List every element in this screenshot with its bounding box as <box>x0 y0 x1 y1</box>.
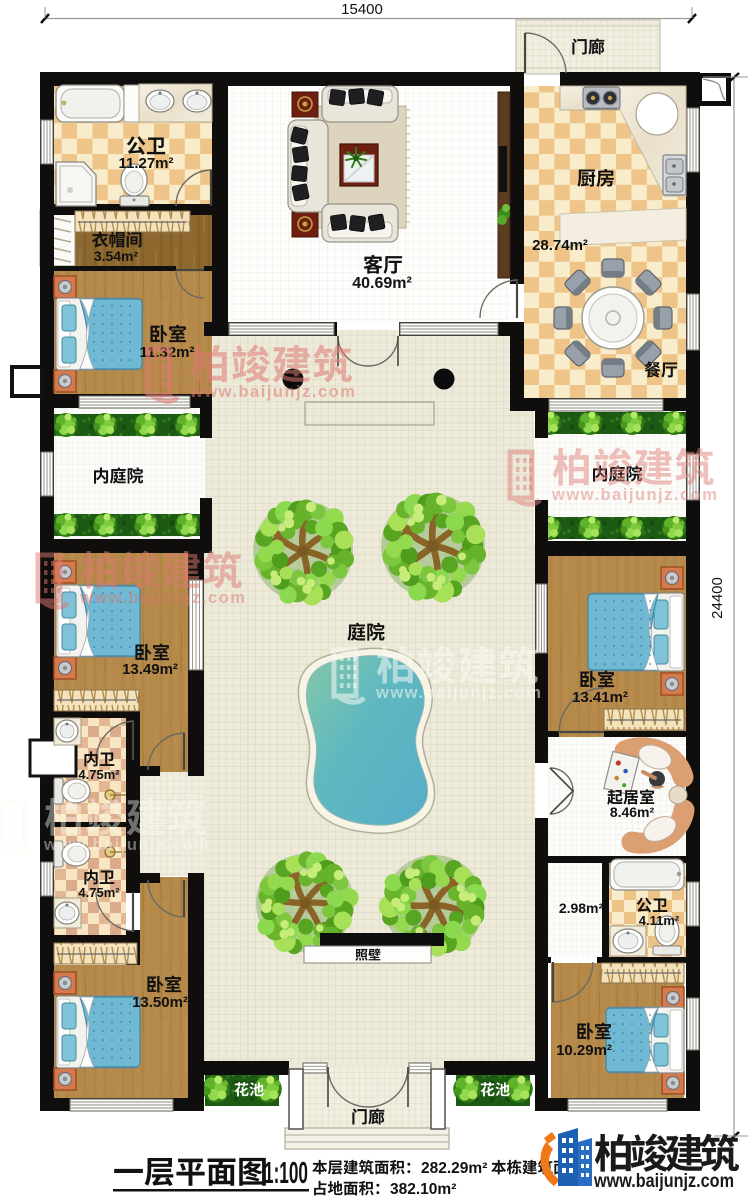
svg-text:www.baijunjz.com: www.baijunjz.com <box>551 486 718 504</box>
svg-text:1:100: 1:100 <box>264 1155 308 1190</box>
svg-text:28.74m²: 28.74m² <box>532 237 588 254</box>
svg-text:2.98m²: 2.98m² <box>559 900 604 916</box>
svg-text:www.baijunjz.com: www.baijunjz.com <box>593 1170 734 1192</box>
svg-text:40.69m²: 40.69m² <box>352 275 412 292</box>
svg-text:13.41m²: 13.41m² <box>572 689 628 706</box>
svg-text:13.49m²: 13.49m² <box>122 661 178 678</box>
svg-text:4.11m²: 4.11m² <box>639 913 680 928</box>
svg-text:4.75m²: 4.75m² <box>78 885 120 900</box>
svg-text:13.50m²: 13.50m² <box>132 994 188 1011</box>
svg-text:3.54m²: 3.54m² <box>94 248 139 264</box>
svg-text:282.29m²: 282.29m² <box>421 1160 487 1177</box>
svg-text:www.baijunjz.com: www.baijunjz.com <box>375 684 542 702</box>
svg-text:15400: 15400 <box>341 1 383 18</box>
svg-text:10.29m²: 10.29m² <box>556 1042 612 1059</box>
svg-text:8.46m²: 8.46m² <box>610 804 655 820</box>
svg-text:www.baijunjz.com: www.baijunjz.com <box>43 836 210 854</box>
svg-text:24400: 24400 <box>709 577 726 619</box>
svg-text:11.27m²: 11.27m² <box>118 155 173 172</box>
svg-text:4.75m²: 4.75m² <box>78 767 120 782</box>
svg-text:www.baijunjz.com: www.baijunjz.com <box>79 589 246 607</box>
svg-text:382.10m²: 382.10m² <box>390 1181 456 1198</box>
svg-text:www.baijunjz.com: www.baijunjz.com <box>189 383 356 401</box>
